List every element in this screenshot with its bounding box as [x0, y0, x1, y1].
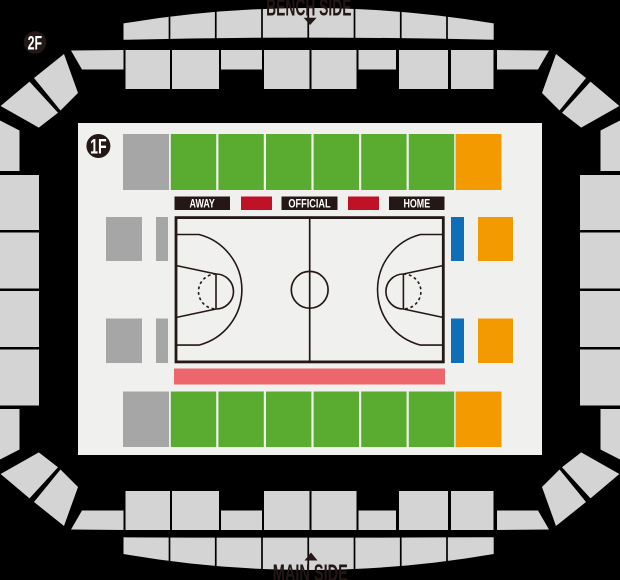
svg-text:AWAY: AWAY — [190, 197, 215, 211]
svg-text:MAIN SIDE: MAIN SIDE — [273, 560, 348, 580]
svg-text:OFFICIAL: OFFICIAL — [288, 197, 330, 211]
svg-text:2F: 2F — [28, 33, 43, 54]
svg-text:HOME: HOME — [403, 197, 430, 211]
svg-text:1F: 1F — [90, 136, 107, 159]
